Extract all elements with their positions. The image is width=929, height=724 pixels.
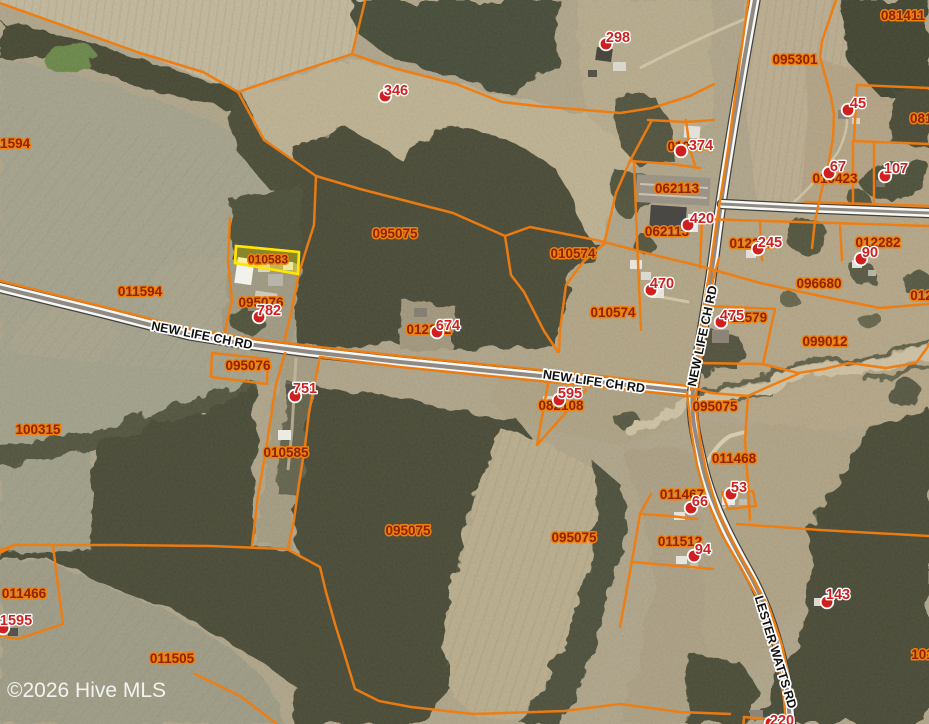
svg-text:782: 782 xyxy=(257,303,281,319)
svg-text:010574: 010574 xyxy=(550,246,596,261)
svg-text:475: 475 xyxy=(720,308,744,324)
svg-text:081411: 081411 xyxy=(881,8,926,23)
svg-text:0814: 0814 xyxy=(910,111,929,126)
svg-text:674: 674 xyxy=(436,318,460,334)
svg-text:298: 298 xyxy=(606,30,630,46)
svg-text:011505: 011505 xyxy=(150,651,195,666)
svg-text:94: 94 xyxy=(695,542,711,558)
svg-text:595: 595 xyxy=(558,386,582,402)
svg-text:66: 66 xyxy=(692,494,708,510)
svg-text:096680: 096680 xyxy=(796,276,841,291)
svg-text:01234: 01234 xyxy=(910,288,929,303)
svg-text:245: 245 xyxy=(758,235,782,251)
svg-text:751: 751 xyxy=(293,381,317,397)
svg-text:095075: 095075 xyxy=(551,530,597,545)
svg-text:011594: 011594 xyxy=(0,136,31,151)
svg-text:010574: 010574 xyxy=(590,305,636,320)
svg-text:095075: 095075 xyxy=(692,399,738,414)
svg-text:011466: 011466 xyxy=(2,586,47,601)
svg-text:107: 107 xyxy=(884,161,908,177)
svg-text:011594: 011594 xyxy=(118,284,163,299)
svg-text:100315: 100315 xyxy=(15,422,61,437)
svg-text:10154: 10154 xyxy=(911,647,929,662)
svg-text:010583: 010583 xyxy=(248,252,288,266)
svg-text:099012: 099012 xyxy=(802,334,847,349)
svg-text:1595: 1595 xyxy=(0,613,32,629)
svg-text:010585: 010585 xyxy=(263,445,309,460)
svg-text:67: 67 xyxy=(830,159,846,175)
svg-text:©2026 Hive MLS: ©2026 Hive MLS xyxy=(7,679,166,702)
svg-text:011468: 011468 xyxy=(712,451,757,466)
svg-text:095075: 095075 xyxy=(385,523,431,538)
svg-text:143: 143 xyxy=(826,587,850,603)
svg-text:374: 374 xyxy=(689,138,713,154)
svg-text:095076: 095076 xyxy=(225,358,271,373)
svg-text:346: 346 xyxy=(384,83,408,99)
svg-text:095301: 095301 xyxy=(772,52,818,67)
svg-text:420: 420 xyxy=(690,211,714,227)
svg-text:470: 470 xyxy=(650,276,674,292)
svg-text:45: 45 xyxy=(850,96,866,112)
svg-text:53: 53 xyxy=(731,480,747,496)
svg-text:90: 90 xyxy=(862,245,878,261)
svg-text:220: 220 xyxy=(770,713,794,724)
svg-text:095075: 095075 xyxy=(372,226,418,241)
svg-text:062113: 062113 xyxy=(655,181,700,196)
